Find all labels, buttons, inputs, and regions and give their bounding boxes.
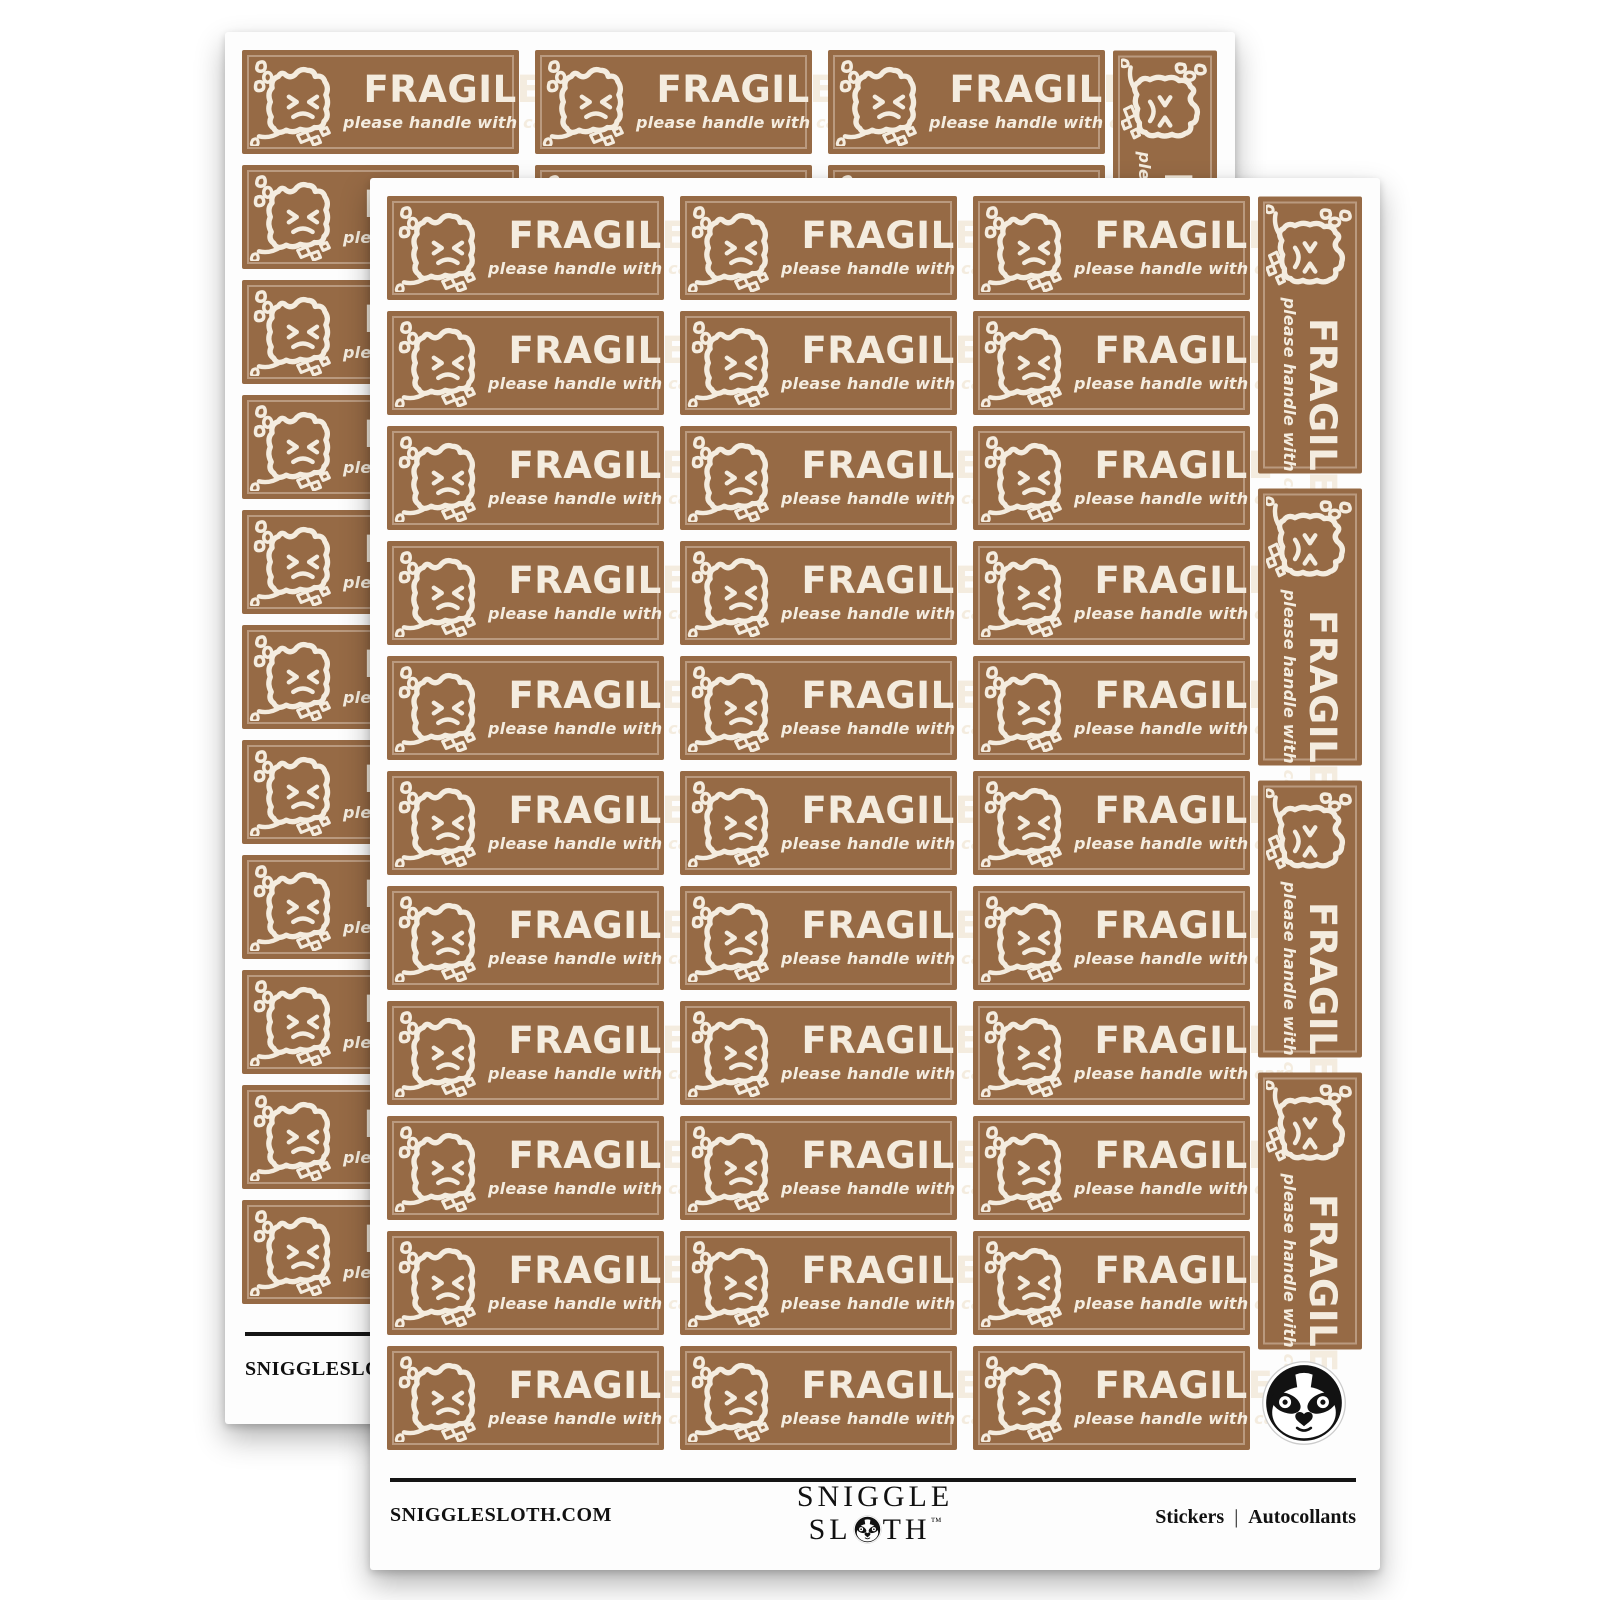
sticker-title: FRAGILE bbox=[509, 562, 688, 599]
fragile-sticker: FRAGILE please handle with care bbox=[973, 886, 1250, 990]
sticker-subtitle: please handle with care bbox=[781, 374, 1001, 393]
sticker-subtitle: please handle with care bbox=[781, 489, 1001, 508]
broken-box-face-icon bbox=[392, 664, 488, 752]
broken-box-face-icon bbox=[978, 1239, 1074, 1327]
broken-box-face-icon bbox=[685, 894, 781, 982]
broken-box-face-icon bbox=[392, 549, 488, 637]
broken-box-face-icon bbox=[392, 1354, 488, 1442]
broken-box-face-icon bbox=[392, 319, 488, 407]
sticker-title: FRAGILE bbox=[802, 907, 981, 944]
sticker-title: FRAGILE bbox=[509, 677, 688, 714]
sticker-subtitle: please handle with care bbox=[781, 1294, 1001, 1313]
broken-box-face-icon bbox=[685, 1124, 781, 1212]
label-stickers-fr: Autocollants bbox=[1248, 1506, 1356, 1528]
sticker-subtitle: please handle with care bbox=[488, 259, 708, 278]
broken-box-face-icon bbox=[685, 1009, 781, 1097]
vertical-sticker-cell: FRAGILE please handle with care bbox=[1258, 1072, 1362, 1349]
broken-box-face-icon bbox=[978, 1124, 1074, 1212]
broken-box-face-icon bbox=[247, 633, 343, 721]
sticker-title: FRAGILE bbox=[1095, 1367, 1274, 1404]
sticker-subtitle: please handle with care bbox=[1280, 589, 1299, 809]
broken-box-face-icon bbox=[1266, 785, 1354, 881]
sticker-title: FRAGILE bbox=[1095, 1137, 1274, 1174]
broken-box-face-icon bbox=[978, 204, 1074, 292]
broken-box-face-icon bbox=[978, 894, 1074, 982]
fragile-sticker: FRAGILE please handle with care bbox=[387, 656, 664, 760]
fragile-sticker: FRAGILE please handle with care bbox=[387, 1346, 664, 1450]
broken-box-face-icon bbox=[247, 518, 343, 606]
sticker-title: FRAGILE bbox=[509, 907, 688, 944]
broken-box-face-icon bbox=[685, 204, 781, 292]
fragile-sticker: FRAGILE please handle with care bbox=[680, 1001, 957, 1105]
sticker-title: FRAGILE bbox=[1095, 217, 1274, 254]
broken-box-face-icon bbox=[978, 664, 1074, 752]
sticker-title: FRAGILE bbox=[802, 332, 981, 369]
sticker-title: FRAGILE bbox=[1095, 1252, 1274, 1289]
broken-box-face-icon bbox=[247, 403, 343, 491]
fragile-sticker: FRAGILE please handle with care bbox=[828, 50, 1105, 154]
fragile-sticker: FRAGILE please handle with care bbox=[973, 311, 1250, 415]
fragile-sticker: FRAGILE please handle with care bbox=[387, 771, 664, 875]
sticker-title: FRAGILE bbox=[509, 1022, 688, 1059]
sticker-subtitle: please handle with care bbox=[488, 834, 708, 853]
sticker-subtitle: please handle with care bbox=[488, 1409, 708, 1428]
vertical-sticker-cell: FRAGILE please handle with care bbox=[1258, 780, 1362, 1057]
fragile-sticker-vertical: FRAGILE please handle with care bbox=[1258, 780, 1362, 1057]
broken-box-face-icon bbox=[978, 1009, 1074, 1097]
sticker-subtitle: please handle with care bbox=[488, 1064, 708, 1083]
sticker-title: FRAGILE bbox=[1095, 907, 1274, 944]
broken-box-face-icon bbox=[392, 894, 488, 982]
sticker-title: FRAGILE bbox=[1095, 677, 1274, 714]
fragile-sticker: FRAGILE please handle with care bbox=[387, 1116, 664, 1220]
sticker-subtitle: please handle with care bbox=[781, 259, 1001, 278]
footer-language-labels: Stickers|Autocollants bbox=[1155, 1506, 1356, 1529]
broken-box-face-icon bbox=[392, 434, 488, 522]
broken-box-face-icon bbox=[247, 748, 343, 836]
vertical-sticker-cell: FRAGILE please handle with care bbox=[1258, 196, 1362, 473]
fragile-sticker: FRAGILE please handle with care bbox=[973, 426, 1250, 530]
fragile-sticker: FRAGILE please handle with care bbox=[535, 50, 812, 154]
fragile-sticker: FRAGILE please handle with care bbox=[387, 311, 664, 415]
sticker-title: FRAGILE bbox=[509, 217, 688, 254]
fragile-sticker: FRAGILE please handle with care bbox=[680, 196, 957, 300]
broken-box-face-icon bbox=[685, 779, 781, 867]
fragile-sticker: FRAGILE please handle with care bbox=[973, 196, 1250, 300]
sticker-subtitle: please handle with care bbox=[343, 113, 563, 132]
sticker-subtitle: please handle with care bbox=[781, 1409, 1001, 1428]
broken-box-face-icon bbox=[392, 1009, 488, 1097]
product-photo: FRAGILE please handle with care FRAGILE … bbox=[0, 0, 1600, 1600]
sticker-title: FRAGILE bbox=[1304, 902, 1341, 1081]
broken-box-face-icon bbox=[1266, 493, 1354, 589]
broken-box-face-icon bbox=[978, 434, 1074, 522]
fragile-sticker: FRAGILE please handle with care bbox=[973, 541, 1250, 645]
broken-box-face-icon bbox=[247, 288, 343, 376]
broken-box-face-icon bbox=[1266, 1077, 1354, 1173]
broken-box-face-icon bbox=[978, 1354, 1074, 1442]
sticker-title: FRAGILE bbox=[509, 332, 688, 369]
sticker-title: FRAGILE bbox=[802, 1022, 981, 1059]
sticker-title: FRAGILE bbox=[509, 1137, 688, 1174]
broken-box-face-icon bbox=[392, 204, 488, 292]
sticker-title: FRAGILE bbox=[1095, 562, 1274, 599]
fragile-sticker: FRAGILE please handle with care bbox=[242, 50, 519, 154]
sticker-title: FRAGILE bbox=[802, 447, 981, 484]
fragile-sticker: FRAGILE please handle with care bbox=[680, 1231, 957, 1335]
fragile-sticker: FRAGILE please handle with care bbox=[973, 1231, 1250, 1335]
sticker-title: FRAGILE bbox=[1095, 1022, 1274, 1059]
sticker-subtitle: please handle with care bbox=[1280, 881, 1299, 1101]
broken-box-face-icon bbox=[685, 319, 781, 407]
broken-box-face-icon bbox=[1266, 201, 1354, 297]
sticker-subtitle: please handle with care bbox=[488, 489, 708, 508]
fragile-sticker: FRAGILE please handle with care bbox=[680, 656, 957, 760]
broken-box-face-icon bbox=[247, 1208, 343, 1296]
label-stickers-en: Stickers bbox=[1155, 1506, 1224, 1528]
sticker-subtitle: please handle with care bbox=[488, 374, 708, 393]
broken-box-face-icon bbox=[685, 1354, 781, 1442]
sticker-subtitle: please handle with care bbox=[781, 604, 1001, 623]
broken-box-face-icon bbox=[685, 549, 781, 637]
fragile-sticker: FRAGILE please handle with care bbox=[387, 541, 664, 645]
trademark-symbol: ™ bbox=[931, 1516, 942, 1528]
sticker-title: FRAGILE bbox=[802, 1252, 981, 1289]
fragile-sticker: FRAGILE please handle with care bbox=[680, 426, 957, 530]
broken-box-face-icon bbox=[685, 664, 781, 752]
sticker-subtitle: please handle with care bbox=[488, 719, 708, 738]
vertical-sticker-cell: FRAGILE please handle with care bbox=[1258, 488, 1362, 765]
fragile-sticker: FRAGILE please handle with care bbox=[387, 426, 664, 530]
sticker-title: FRAGILE bbox=[1095, 792, 1274, 829]
broken-box-face-icon bbox=[247, 1093, 343, 1181]
broken-box-face-icon bbox=[978, 319, 1074, 407]
broken-box-face-icon bbox=[540, 58, 636, 146]
sticker-title: FRAGILE bbox=[509, 1252, 688, 1289]
fragile-sticker: FRAGILE please handle with care bbox=[973, 771, 1250, 875]
sticker-subtitle: please handle with care bbox=[488, 1294, 708, 1313]
sticker-subtitle: please handle with care bbox=[636, 113, 856, 132]
sticker-subtitle: please handle with care bbox=[488, 1179, 708, 1198]
broken-box-face-icon bbox=[247, 173, 343, 261]
fragile-sticker: FRAGILE please handle with care bbox=[973, 1346, 1250, 1450]
sticker-subtitle: please handle with care bbox=[488, 604, 708, 623]
fragile-sticker: FRAGILE please handle with care bbox=[387, 1231, 664, 1335]
brand-word-top: SNIGGLE bbox=[797, 1480, 953, 1513]
sticker-subtitle: please handle with care bbox=[781, 949, 1001, 968]
sloth-face-icon bbox=[853, 1515, 882, 1544]
label-separator: | bbox=[1224, 1506, 1248, 1528]
fragile-sticker: FRAGILE please handle with care bbox=[387, 1001, 664, 1105]
fragile-sticker: FRAGILE please handle with care bbox=[680, 1116, 957, 1220]
fragile-sticker: FRAGILE please handle with care bbox=[680, 886, 957, 990]
sticker-title: FRAGILE bbox=[950, 71, 1129, 108]
sticker-title: FRAGILE bbox=[509, 1367, 688, 1404]
sticker-title: FRAGILE bbox=[509, 447, 688, 484]
broken-box-face-icon bbox=[978, 779, 1074, 867]
broken-box-face-icon bbox=[685, 1239, 781, 1327]
sticker-subtitle: please handle with care bbox=[781, 1179, 1001, 1198]
sticker-title: FRAGILE bbox=[1304, 610, 1341, 789]
broken-box-face-icon bbox=[685, 434, 781, 522]
broken-box-face-icon bbox=[833, 58, 929, 146]
sticker-subtitle: please handle with care bbox=[1280, 297, 1299, 517]
sticker-title: FRAGILE bbox=[1304, 1194, 1341, 1373]
fragile-sticker: FRAGILE please handle with care bbox=[973, 1116, 1250, 1220]
sticker-title: FRAGILE bbox=[364, 71, 543, 108]
broken-box-face-icon bbox=[1121, 55, 1209, 151]
sticker-title: FRAGILE bbox=[802, 792, 981, 829]
sloth-face-icon bbox=[1261, 1360, 1347, 1446]
fragile-sticker: FRAGILE please handle with care bbox=[680, 541, 957, 645]
fragile-sticker: FRAGILE please handle with care bbox=[680, 771, 957, 875]
sticker-title: FRAGILE bbox=[509, 792, 688, 829]
fragile-sticker-vertical: FRAGILE please handle with care bbox=[1258, 488, 1362, 765]
fragile-sticker-vertical: FRAGILE please handle with care bbox=[1258, 196, 1362, 473]
broken-box-face-icon bbox=[392, 779, 488, 867]
sticker-title: FRAGILE bbox=[1095, 447, 1274, 484]
broken-box-face-icon bbox=[247, 978, 343, 1066]
broken-box-face-icon bbox=[247, 58, 343, 146]
broken-box-face-icon bbox=[392, 1124, 488, 1212]
sticker-subtitle: please handle with care bbox=[781, 1064, 1001, 1083]
broken-box-face-icon bbox=[978, 549, 1074, 637]
vertical-sticker-column: FRAGILE please handle with care FRAGILE … bbox=[1258, 196, 1362, 1349]
fragile-sticker: FRAGILE please handle with care bbox=[973, 656, 1250, 760]
sticker-title: FRAGILE bbox=[802, 1137, 981, 1174]
sticker-title: FRAGILE bbox=[1095, 332, 1274, 369]
sticker-title: FRAGILE bbox=[802, 217, 981, 254]
sticker-subtitle: please handle with care bbox=[488, 949, 708, 968]
broken-box-face-icon bbox=[247, 863, 343, 951]
fragile-sticker: FRAGILE please handle with care bbox=[680, 1346, 957, 1450]
sticker-title: FRAGILE bbox=[802, 562, 981, 599]
sticker-title: FRAGILE bbox=[657, 71, 836, 108]
sticker-title: FRAGILE bbox=[1304, 318, 1341, 497]
front-sticker-sheet: FRAGILE please handle with care FRAGILE … bbox=[370, 178, 1380, 1570]
sticker-subtitle: please handle with care bbox=[781, 834, 1001, 853]
fragile-sticker: FRAGILE please handle with care bbox=[387, 886, 664, 990]
horizontal-sticker-grid: FRAGILE please handle with care FRAGILE … bbox=[387, 196, 1250, 1450]
fragile-sticker-vertical: FRAGILE please handle with care bbox=[1258, 1072, 1362, 1349]
broken-box-face-icon bbox=[392, 1239, 488, 1327]
fragile-sticker: FRAGILE please handle with care bbox=[680, 311, 957, 415]
sticker-title: FRAGILE bbox=[802, 677, 981, 714]
fragile-sticker: FRAGILE please handle with care bbox=[973, 1001, 1250, 1105]
fragile-sticker: FRAGILE please handle with care bbox=[387, 196, 664, 300]
sticker-title: FRAGILE bbox=[802, 1367, 981, 1404]
sticker-subtitle: please handle with care bbox=[781, 719, 1001, 738]
